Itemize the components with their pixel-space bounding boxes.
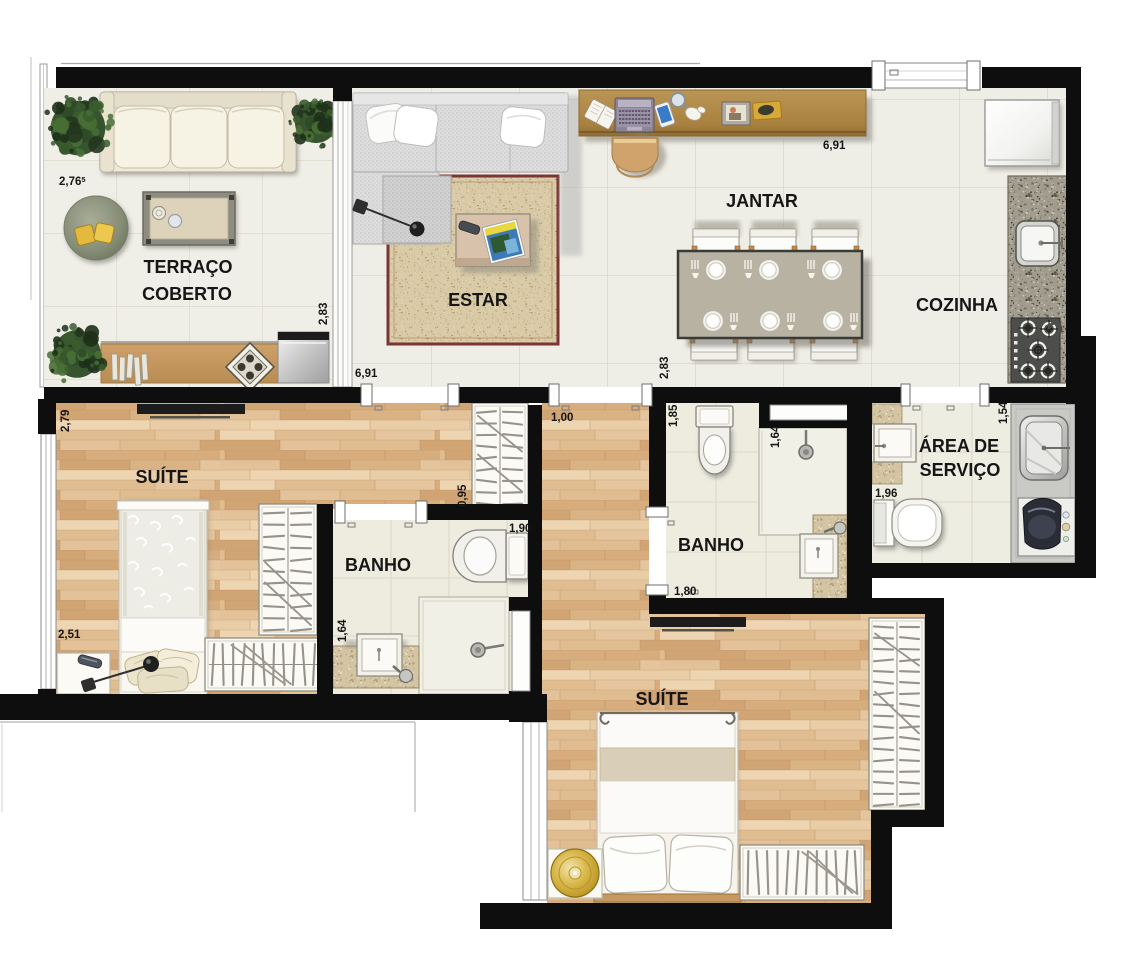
svg-text:SERVIÇO: SERVIÇO [920,460,1001,480]
svg-text:2,83: 2,83 [659,357,671,379]
svg-text:0,95: 0,95 [457,484,469,507]
svg-text:1,54: 1,54 [998,401,1010,424]
svg-text:ESTAR: ESTAR [448,290,508,310]
svg-text:BANHO: BANHO [678,535,744,555]
svg-text:2,83: 2,83 [318,303,330,325]
svg-text:COBERTO: COBERTO [142,284,232,304]
svg-text:1,90: 1,90 [509,523,531,535]
svg-text:SUÍTE: SUÍTE [635,688,688,709]
svg-text:COZINHA: COZINHA [916,295,998,315]
svg-text:6,91: 6,91 [355,368,378,380]
svg-text:TERRAÇO: TERRAÇO [144,257,233,277]
svg-text:1,64: 1,64 [770,425,782,448]
svg-text:1,64: 1,64 [337,619,349,642]
svg-text:1,00: 1,00 [551,412,573,424]
svg-text:1,85: 1,85 [668,404,680,427]
svg-text:2,79: 2,79 [60,410,72,432]
svg-text:2,51: 2,51 [58,629,81,641]
svg-text:SUÍTE: SUÍTE [135,466,188,487]
svg-text:1,96: 1,96 [875,488,897,500]
svg-text:1,80: 1,80 [674,586,696,598]
svg-text:BANHO: BANHO [345,555,411,575]
svg-text:ÁREA DE: ÁREA DE [919,435,999,456]
svg-text:6,91: 6,91 [823,140,846,152]
svg-text:JANTAR: JANTAR [726,191,798,211]
